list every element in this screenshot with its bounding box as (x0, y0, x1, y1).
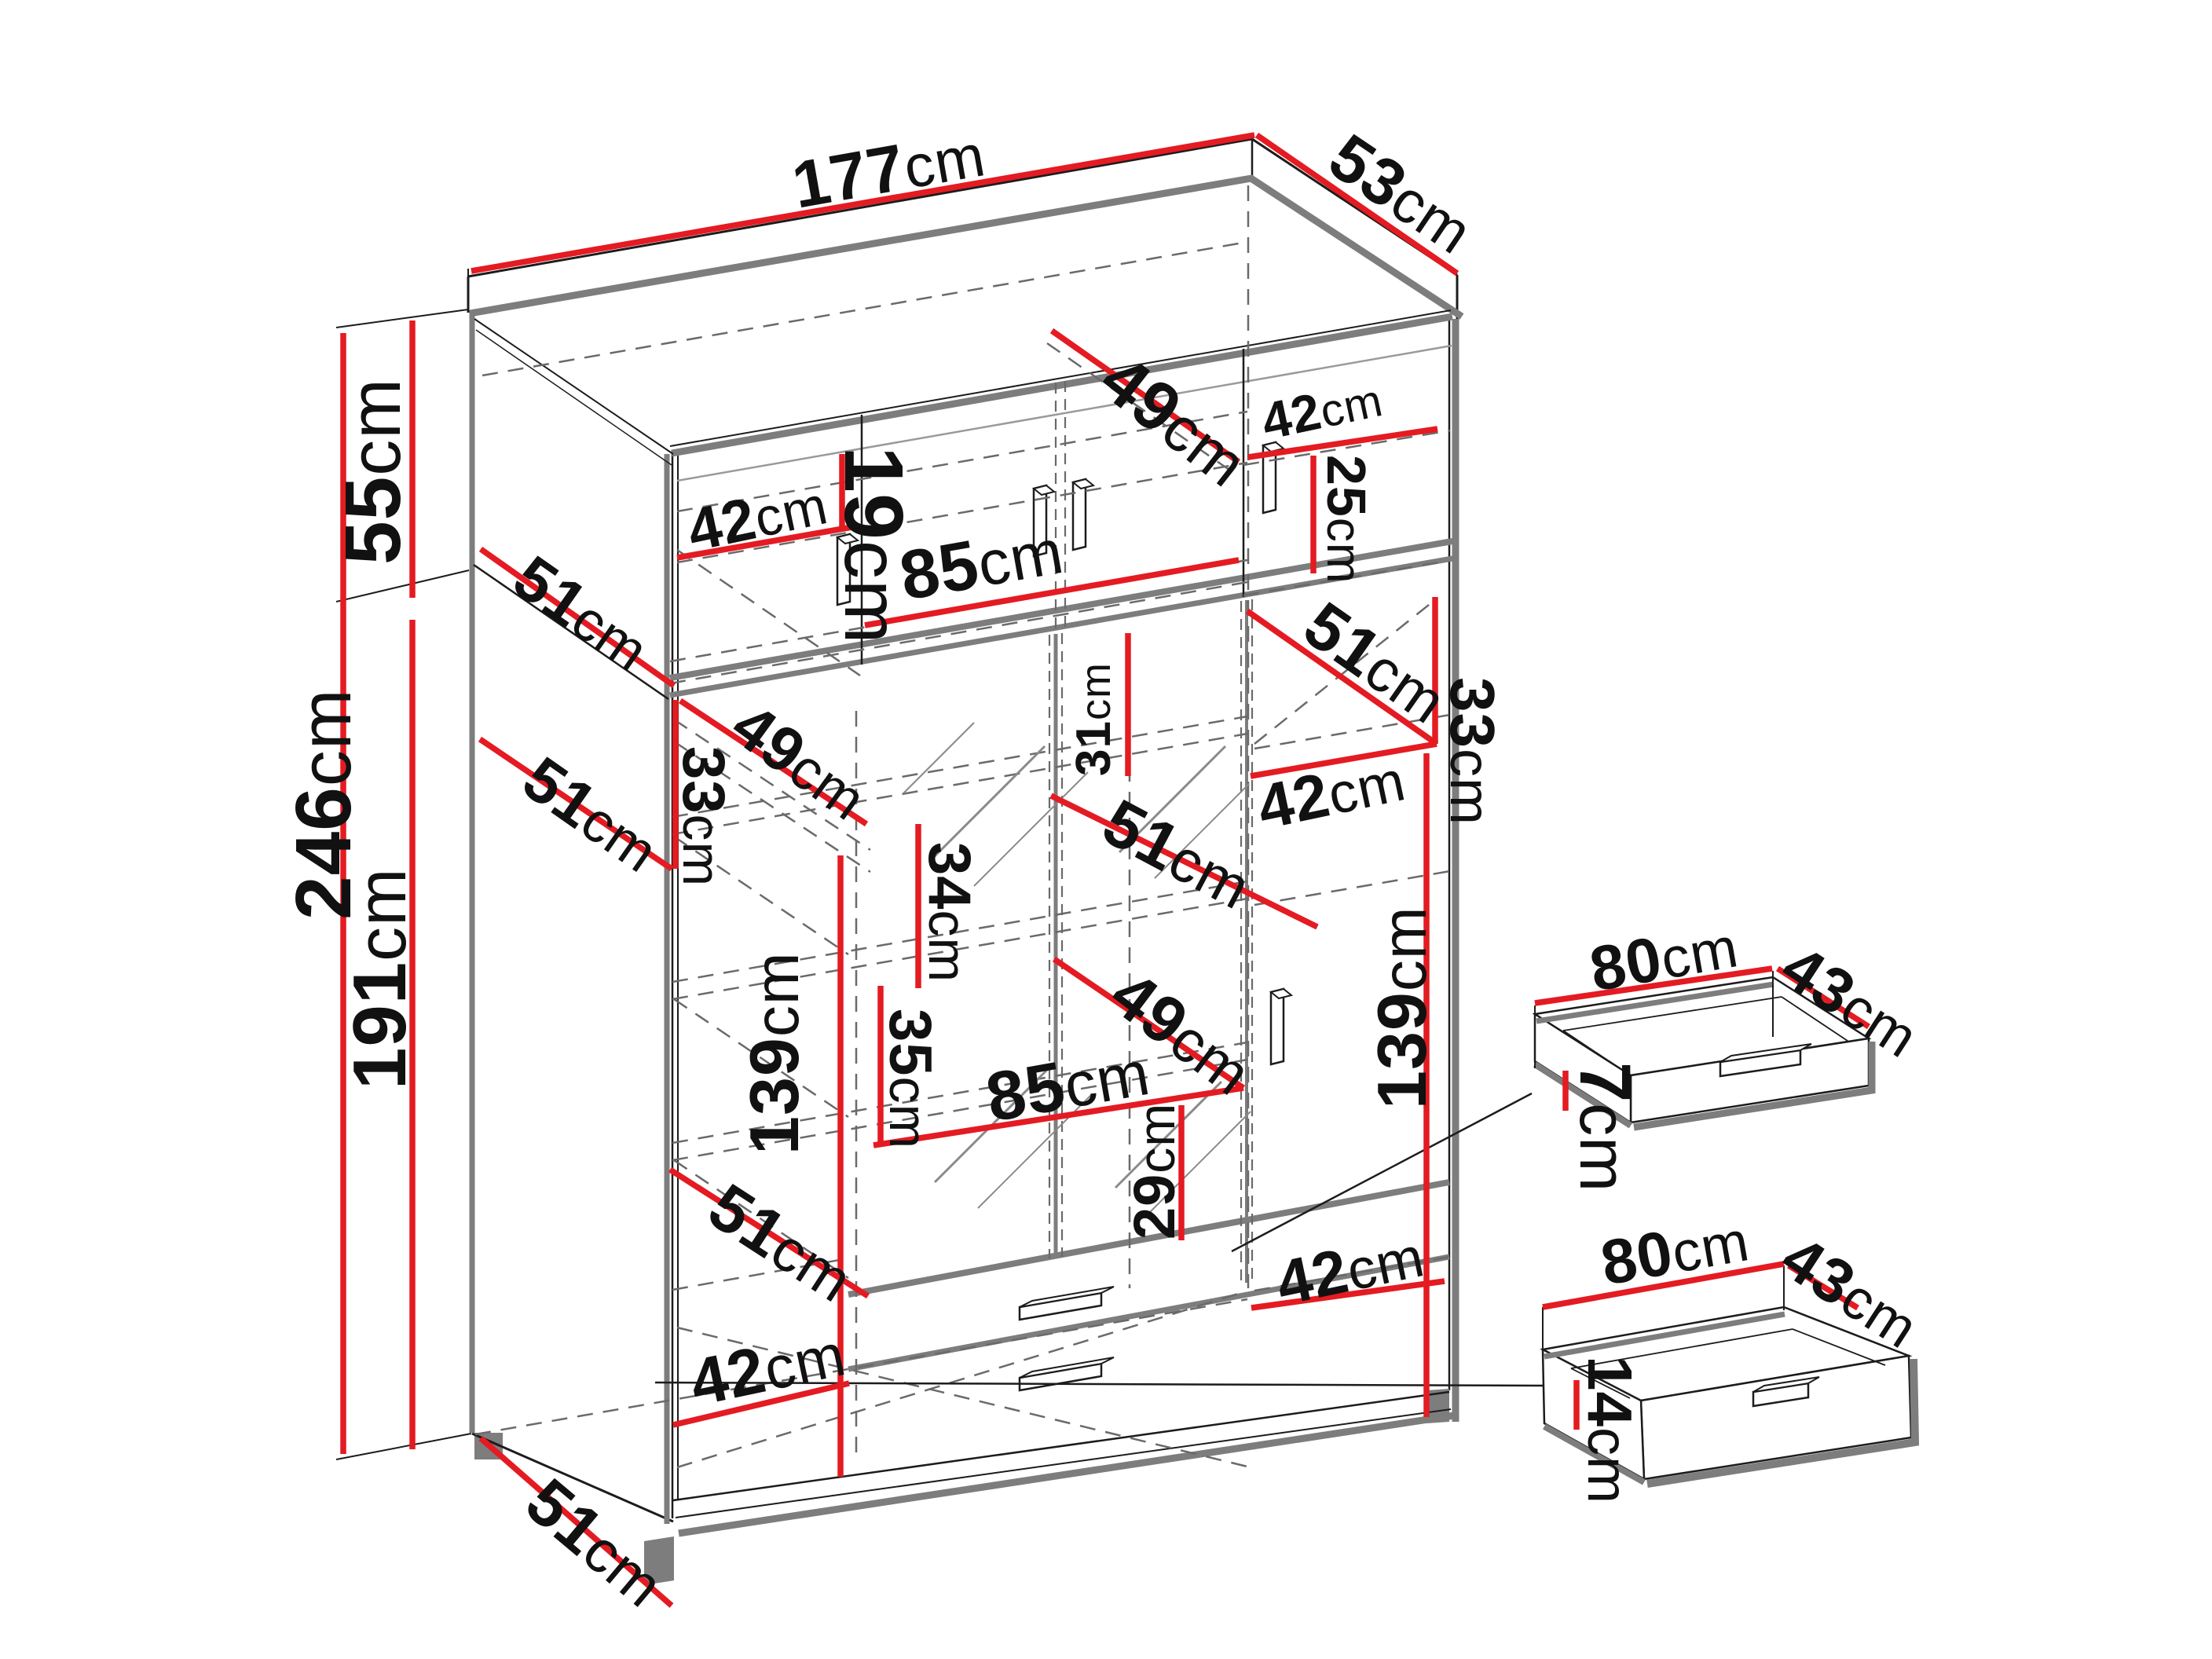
svg-text:7cm: 7cm (1565, 1062, 1645, 1192)
svg-text:35cm: 35cm (877, 1009, 943, 1149)
svg-text:31cm: 31cm (1067, 662, 1121, 776)
svg-text:191cm: 191cm (338, 868, 422, 1090)
svg-text:33cm: 33cm (670, 746, 737, 887)
svg-text:14cm: 14cm (1575, 1356, 1645, 1504)
svg-text:29cm: 29cm (1122, 1103, 1187, 1240)
svg-text:139cm: 139cm (735, 952, 813, 1155)
svg-text:139cm: 139cm (1363, 906, 1441, 1109)
svg-text:25cm: 25cm (1316, 455, 1377, 584)
svg-text:55cm: 55cm (329, 378, 417, 565)
svg-text:33cm: 33cm (1437, 677, 1507, 826)
svg-text:34cm: 34cm (916, 842, 983, 983)
